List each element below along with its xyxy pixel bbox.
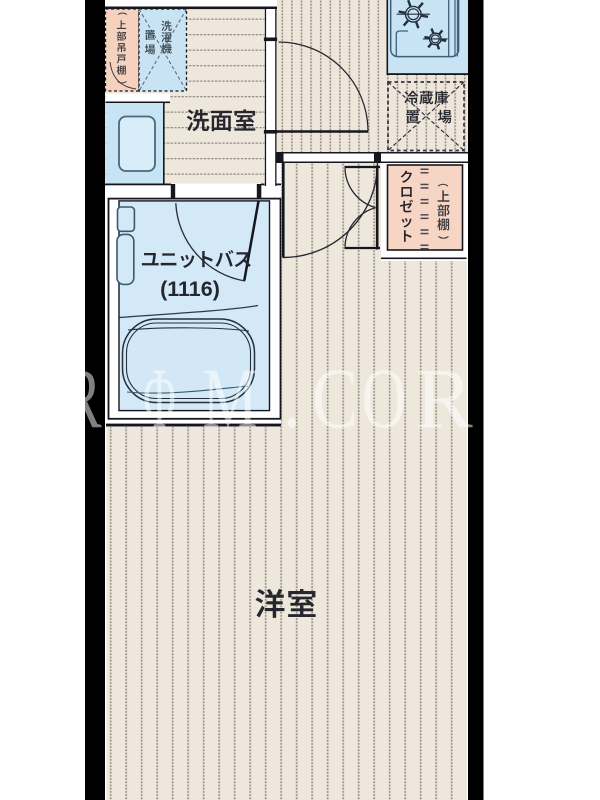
svg-text:R: R bbox=[415, 350, 473, 446]
svg-text:O: O bbox=[362, 351, 407, 446]
svg-text:Φ: Φ bbox=[143, 350, 176, 445]
svg-text:(1116): (1116) bbox=[160, 277, 220, 301]
svg-text:M: M bbox=[202, 351, 257, 446]
svg-text:.: . bbox=[283, 351, 300, 446]
svg-text:C: C bbox=[312, 351, 358, 446]
svg-text:R: R bbox=[62, 350, 101, 446]
